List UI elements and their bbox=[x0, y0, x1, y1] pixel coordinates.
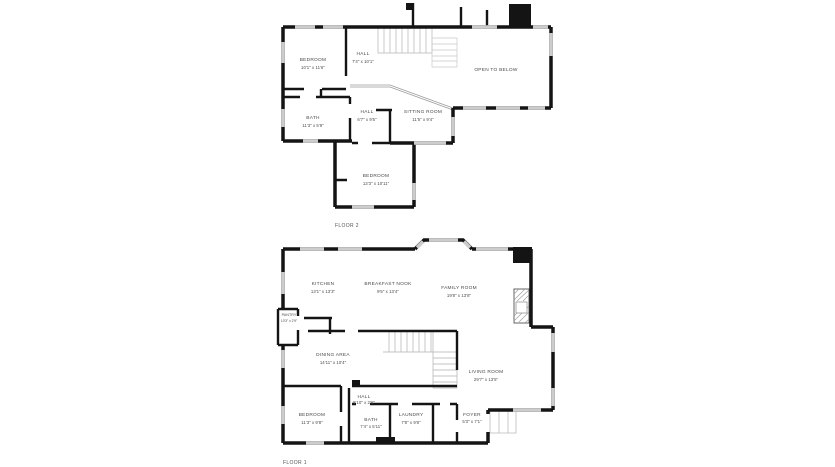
room-dims-bedroom-f2b: 13'3" x 10'11" bbox=[363, 181, 390, 186]
room-dims-pantry: 10'3" x 2'9" bbox=[281, 319, 298, 323]
room-name-sitting-room: SITTING ROOM bbox=[404, 109, 442, 115]
room-dims-hall-f2b: 6'7" x 9'5" bbox=[357, 117, 377, 122]
floor2-staircase bbox=[378, 28, 432, 53]
room-name-bedroom-f1: BEDROOM bbox=[299, 412, 326, 418]
floor2-staircase-lower-flight bbox=[432, 38, 457, 67]
room-dims-laundry: 7'8" x 9'8" bbox=[401, 420, 421, 425]
room-name-hall-f2a: HALL bbox=[357, 51, 370, 57]
floor2-open-railing bbox=[350, 85, 453, 110]
room-name-pantry: PANTRY bbox=[282, 313, 297, 317]
room-dims-bath-f2: 11'3" x 5'9" bbox=[302, 123, 324, 128]
floor1-fireplace bbox=[514, 289, 529, 323]
room-name-bedroom-f2b: BEDROOM bbox=[363, 173, 390, 179]
room-dims-foyer: 5'3" x 7'1" bbox=[462, 419, 482, 424]
room-name-hall-f2b: HALL bbox=[361, 109, 374, 115]
floorplan-page: BEDROOM 10'1" x 11'6" HALL 7'4" x 10'1" … bbox=[0, 0, 835, 467]
room-dims-bath-f1: 7'4" x 5'11" bbox=[360, 424, 382, 429]
floorplan-canvas: BEDROOM 10'1" x 11'6" HALL 7'4" x 10'1" … bbox=[0, 0, 835, 467]
floor2-chimney-block bbox=[406, 3, 531, 27]
room-dims-bedroom-f2a: 10'1" x 11'6" bbox=[301, 65, 325, 70]
room-dims-family-room: 19'8" x 13'8" bbox=[447, 293, 472, 298]
floor1-caption: FLOOR 1 bbox=[283, 460, 307, 466]
room-name-bath-f2: BATH bbox=[306, 115, 320, 121]
floor1-chimney-block bbox=[352, 247, 532, 444]
room-name-foyer: FOYER bbox=[463, 412, 481, 418]
room-name-bath-f1: BATH bbox=[364, 417, 378, 423]
floor1-staircase bbox=[383, 331, 457, 388]
room-dims-dining-area: 14'11" x 10'4" bbox=[320, 360, 347, 365]
room-dims-bedroom-f1: 11'3" x 9'8" bbox=[301, 420, 323, 425]
room-dims-sitting-room: 11'5" x 9'4" bbox=[412, 117, 434, 122]
room-name-family-room: FAMILY ROOM bbox=[441, 285, 477, 291]
room-name-bedroom-f2a: BEDROOM bbox=[300, 57, 327, 63]
room-dims-hall-f2a: 7'4" x 10'1" bbox=[352, 59, 374, 64]
room-name-open-to-below: OPEN TO BELOW bbox=[474, 67, 518, 73]
room-name-dining-area: DINING AREA bbox=[316, 352, 350, 358]
floor2-interior-walls bbox=[283, 3, 487, 180]
room-name-kitchen: KITCHEN bbox=[312, 281, 335, 287]
floor1-plan: KITCHEN 13'1" x 13'3" BREAKFAST NOOK 9'5… bbox=[278, 240, 553, 466]
room-dims-hall-f1: 5'10" x 2'6" bbox=[353, 400, 375, 405]
floor1-porch-steps bbox=[490, 411, 516, 433]
room-name-living-room: LIVING ROOM bbox=[469, 369, 504, 375]
floor2-plan: BEDROOM 10'1" x 11'6" HALL 7'4" x 10'1" … bbox=[283, 3, 551, 229]
room-dims-living-room: 29'7" x 13'5" bbox=[474, 377, 499, 382]
floor2-caption: FLOOR 2 bbox=[335, 223, 359, 229]
room-dims-breakfast-nook: 9'5" x 13'4" bbox=[377, 289, 399, 294]
room-dims-kitchen: 13'1" x 13'3" bbox=[311, 289, 336, 294]
room-name-breakfast-nook: BREAKFAST NOOK bbox=[364, 281, 412, 287]
room-name-laundry: LAUNDRY bbox=[399, 412, 424, 418]
